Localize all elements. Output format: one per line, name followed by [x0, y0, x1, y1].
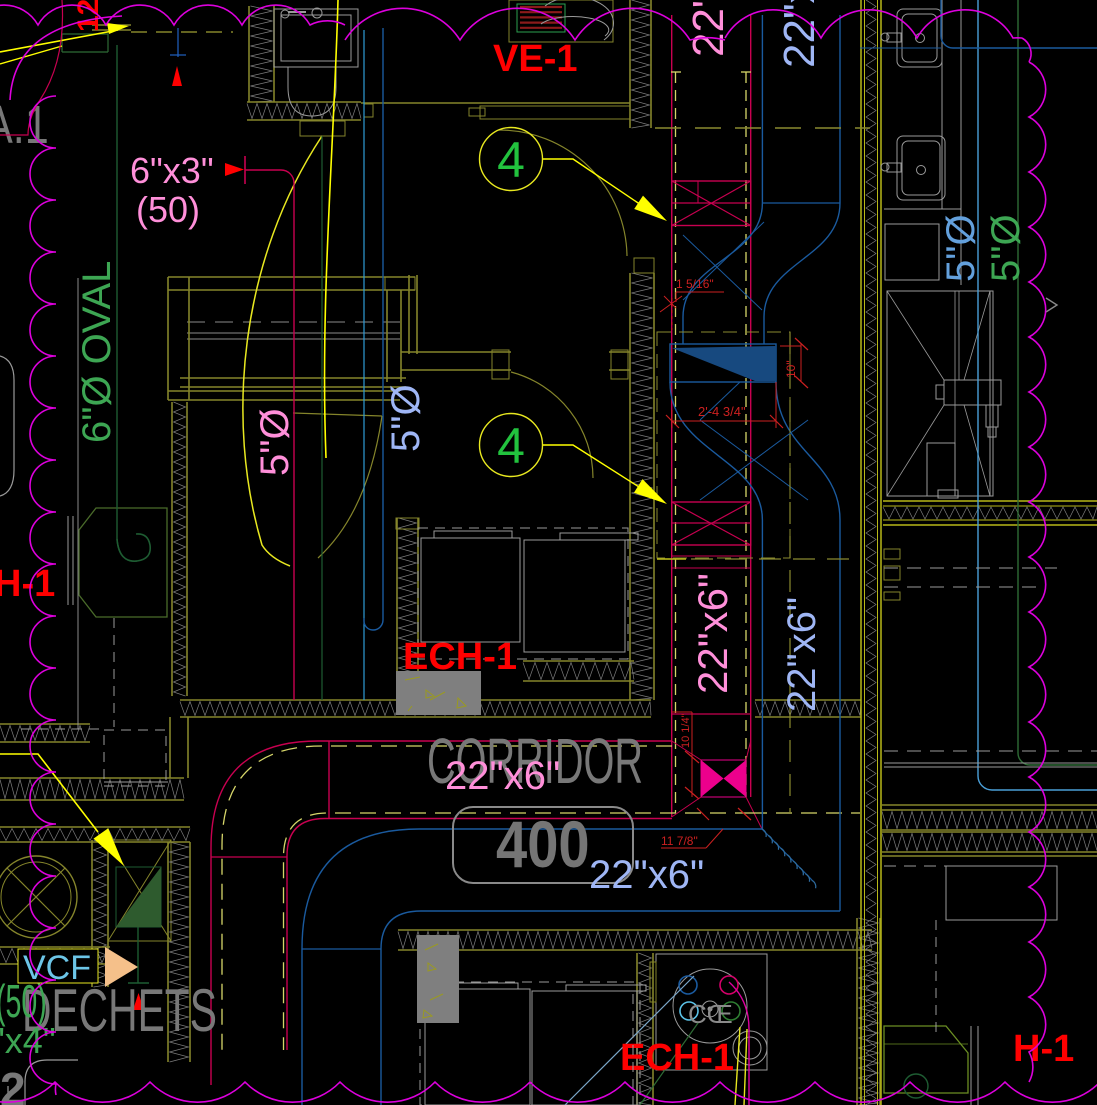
svg-text:5"Ø: 5"Ø: [253, 408, 297, 476]
svg-text:VE-1: VE-1: [493, 38, 577, 80]
svg-text:10": 10": [784, 360, 798, 378]
svg-text:400: 400: [496, 808, 590, 881]
svg-text:22"x6": 22"x6": [780, 597, 824, 712]
svg-text:22"x6": 22"x6": [689, 573, 736, 694]
svg-text:(50): (50): [136, 189, 200, 230]
svg-text:4: 4: [497, 418, 525, 474]
svg-text:ECH-1: ECH-1: [620, 1037, 734, 1079]
svg-text:6"Ø OVAL: 6"Ø OVAL: [75, 261, 119, 443]
svg-text:H-1: H-1: [0, 563, 55, 605]
svg-text:2: 2: [0, 1063, 26, 1105]
svg-text:22"x6": 22"x6": [684, 0, 733, 57]
svg-text:CŒ: CŒ: [688, 999, 733, 1029]
svg-text:ECH-1: ECH-1: [403, 636, 517, 678]
svg-text:10 1/4": 10 1/4": [680, 713, 692, 748]
svg-text:4: 4: [497, 132, 525, 188]
svg-text:5"Ø: 5"Ø: [939, 214, 983, 282]
svg-text:2'-4 3/4": 2'-4 3/4": [698, 404, 746, 419]
svg-text:22"x6": 22"x6": [445, 754, 560, 798]
svg-text:A.1: A.1: [0, 96, 49, 156]
svg-text:1 5/16": 1 5/16": [676, 277, 714, 291]
svg-text:5"Ø: 5"Ø: [984, 214, 1028, 282]
svg-text:6"x3": 6"x3": [130, 150, 214, 191]
svg-text:6"x4": 6"x4": [0, 1020, 56, 1061]
svg-text:22"x6": 22"x6": [589, 853, 704, 897]
svg-text:11 7/8": 11 7/8": [661, 834, 698, 848]
svg-text:5"Ø: 5"Ø: [384, 384, 428, 452]
